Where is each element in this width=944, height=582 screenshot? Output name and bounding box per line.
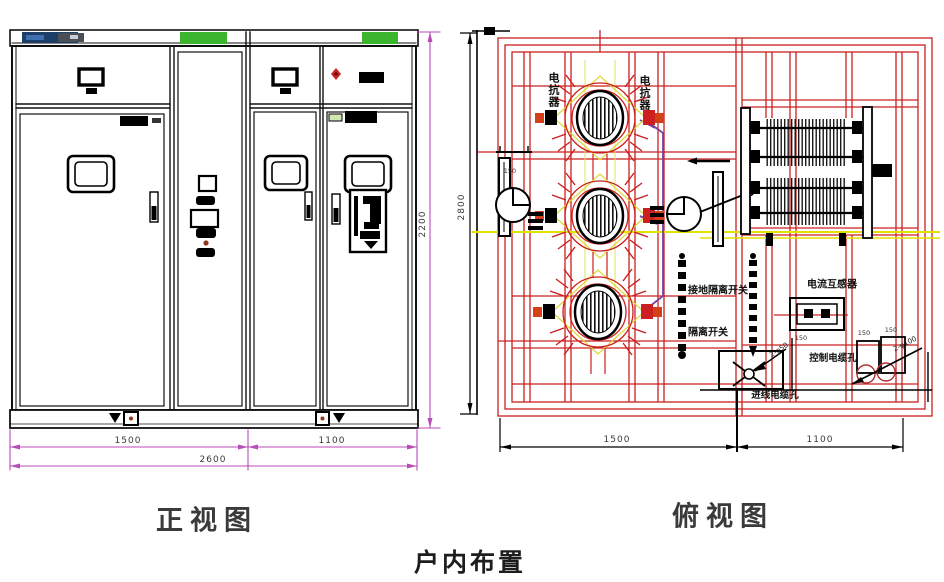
- top-dim-depth: 2800: [457, 194, 467, 221]
- switch-insulator-columns: [678, 253, 757, 359]
- top-view-title: 俯视图: [672, 495, 774, 534]
- door-nameplate-right: [345, 111, 377, 123]
- top-view-dimension-lines: [460, 33, 903, 452]
- green-vent-left: [180, 32, 227, 44]
- fin-group-top: [766, 119, 846, 166]
- reactor-label-left: 电抗器: [545, 72, 561, 108]
- monitor-icon-left: [79, 69, 103, 94]
- top-dim-right: 1100: [807, 435, 834, 445]
- reactor-phase-b: [535, 173, 664, 278]
- door-handle-mid: [305, 192, 312, 220]
- front-dim-left: 1500: [115, 436, 142, 446]
- label-plate-top-right: [359, 72, 384, 83]
- front-view-drawing: [10, 30, 440, 470]
- control-cable-hole-label: 控制电缆孔: [809, 350, 857, 364]
- disconnector-label: 隔离开关: [688, 324, 728, 339]
- bank-terminal-stub: [872, 164, 892, 177]
- incoming-cable-hole-label: 进线电缆孔: [751, 387, 799, 401]
- front-view-title: 正视图: [156, 499, 258, 538]
- page-caption: 户内布置: [414, 543, 526, 579]
- hole-dim-a: 150: [504, 167, 516, 175]
- front-dim-height: 2200: [418, 211, 428, 238]
- monitor-icon-right: [273, 69, 297, 94]
- front-dim-total: 2600: [200, 455, 227, 465]
- viewing-window-mid: [265, 156, 307, 190]
- reactor-phase-c: [533, 269, 662, 374]
- indicator-lamp-icon: [331, 68, 341, 80]
- hole-dim-c: 150: [858, 329, 870, 337]
- earthing-disconnector-label: 接地隔离开关: [688, 282, 748, 297]
- door-nameplate-left: [120, 116, 148, 126]
- current-transformer-label: 电流互感器: [807, 276, 857, 291]
- viewing-window-right: [345, 156, 391, 192]
- resistor-bank: [741, 107, 892, 246]
- fin-group-bottom: [766, 178, 846, 225]
- front-dim-right: 1100: [319, 436, 346, 446]
- door-handle-left: [150, 192, 158, 222]
- drawing-canvas: [0, 0, 944, 582]
- top-dim-left: 1500: [604, 435, 631, 445]
- viewing-window-left: [68, 156, 114, 192]
- hole-dim-d: 150: [885, 326, 897, 334]
- blueprint-page: 正视图 俯视图 户内布置 1500 1100 2600 2200 1500 11…: [0, 0, 944, 582]
- green-tag: [329, 114, 342, 121]
- hole-dim-b: 150: [795, 334, 807, 342]
- door-handle-right: [332, 194, 340, 224]
- current-transformer-device: [790, 298, 844, 330]
- mimic-diagram-plate: [350, 190, 386, 252]
- reactor-label-right: 电抗器: [636, 75, 652, 111]
- cabinet-base: [10, 410, 418, 428]
- top-view-drawing: [460, 27, 940, 452]
- green-vent-right: [362, 32, 398, 44]
- instrument-stack: [191, 176, 218, 257]
